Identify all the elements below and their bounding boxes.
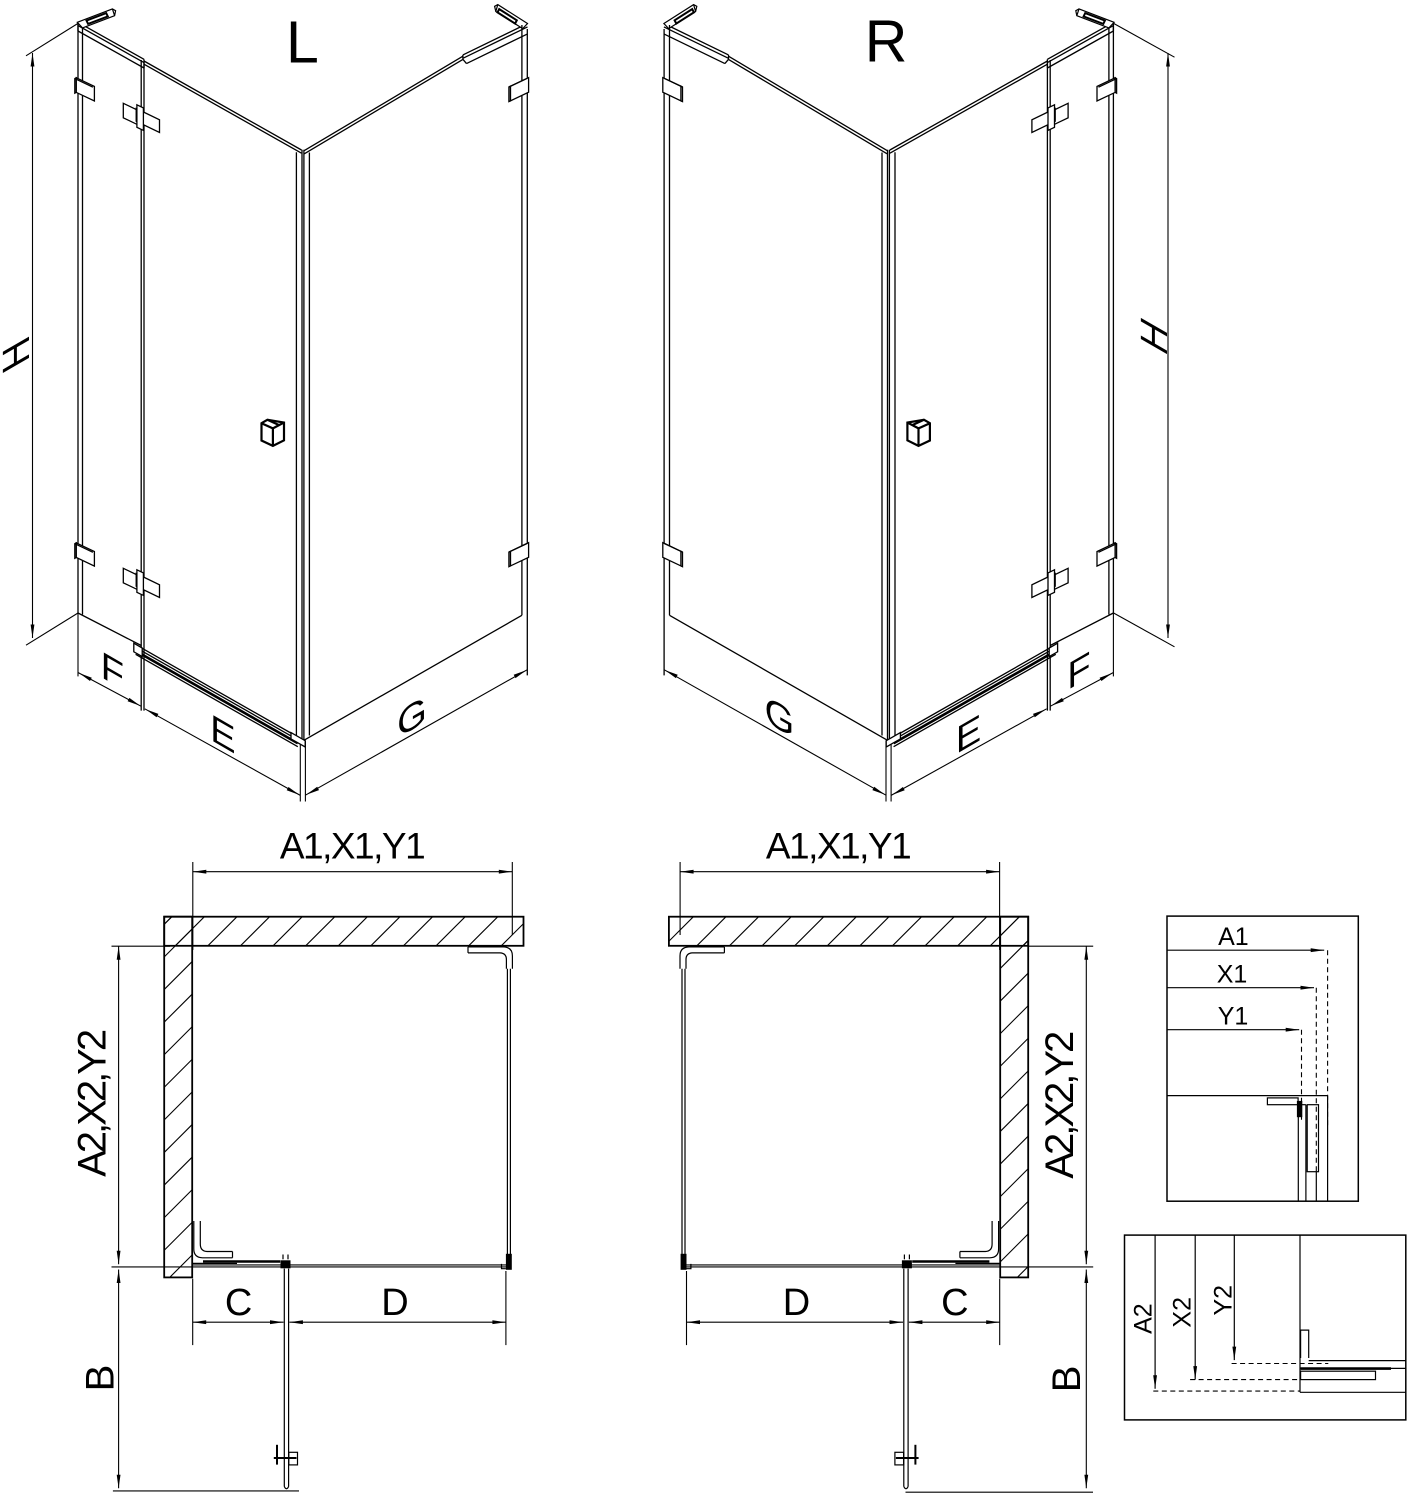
svg-text:C: C	[941, 1282, 968, 1324]
svg-text:A2,X2,Y2: A2,X2,Y2	[1038, 1032, 1082, 1179]
svg-text:D: D	[783, 1282, 810, 1324]
svg-text:B: B	[1045, 1366, 1089, 1393]
svg-text:L: L	[286, 10, 319, 76]
svg-text:Y1: Y1	[1218, 1003, 1249, 1031]
svg-text:C: C	[225, 1282, 252, 1324]
svg-text:D: D	[381, 1282, 408, 1324]
svg-text:X2: X2	[1169, 1297, 1197, 1328]
svg-text:A1,X1,Y1: A1,X1,Y1	[766, 825, 910, 866]
svg-text:A2: A2	[1129, 1303, 1157, 1334]
svg-text:X1: X1	[1217, 961, 1248, 989]
svg-text:R: R	[865, 8, 908, 74]
svg-text:A1: A1	[1218, 923, 1249, 951]
svg-text:Y2: Y2	[1209, 1285, 1237, 1316]
svg-text:A1,X1,Y1: A1,X1,Y1	[280, 825, 424, 866]
svg-text:A2,X2,Y2: A2,X2,Y2	[70, 1030, 114, 1177]
svg-text:B: B	[79, 1365, 123, 1392]
